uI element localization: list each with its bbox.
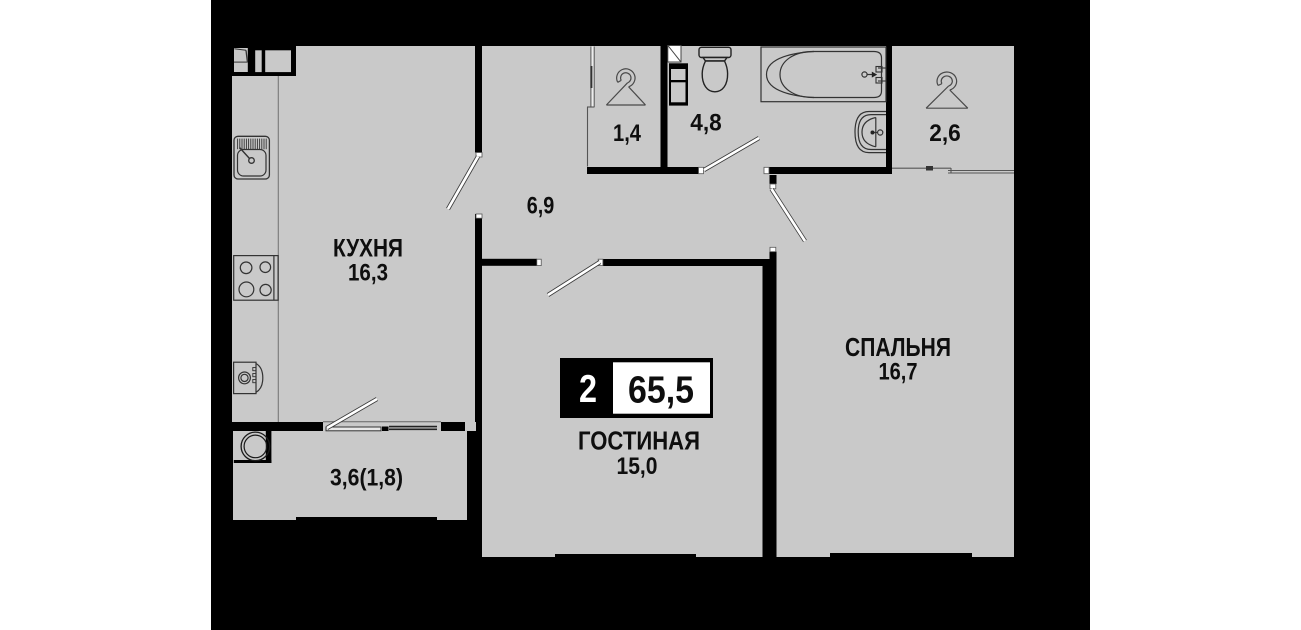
svg-text:65,5: 65,5 — [628, 370, 694, 412]
svg-text:3,6(1,8): 3,6(1,8) — [330, 465, 403, 492]
svg-text:2: 2 — [579, 368, 597, 411]
svg-text:16,7: 16,7 — [879, 359, 918, 386]
svg-text:КУХНЯ: КУХНЯ — [333, 235, 403, 263]
svg-text:6,9: 6,9 — [527, 193, 555, 220]
svg-text:2,6: 2,6 — [929, 120, 961, 147]
svg-text:16,3: 16,3 — [348, 260, 388, 287]
svg-text:15,0: 15,0 — [617, 453, 658, 480]
svg-text:1,4: 1,4 — [613, 120, 642, 147]
svg-text:4,8: 4,8 — [690, 110, 722, 137]
svg-text:ГОСТИНАЯ: ГОСТИНАЯ — [578, 428, 700, 456]
